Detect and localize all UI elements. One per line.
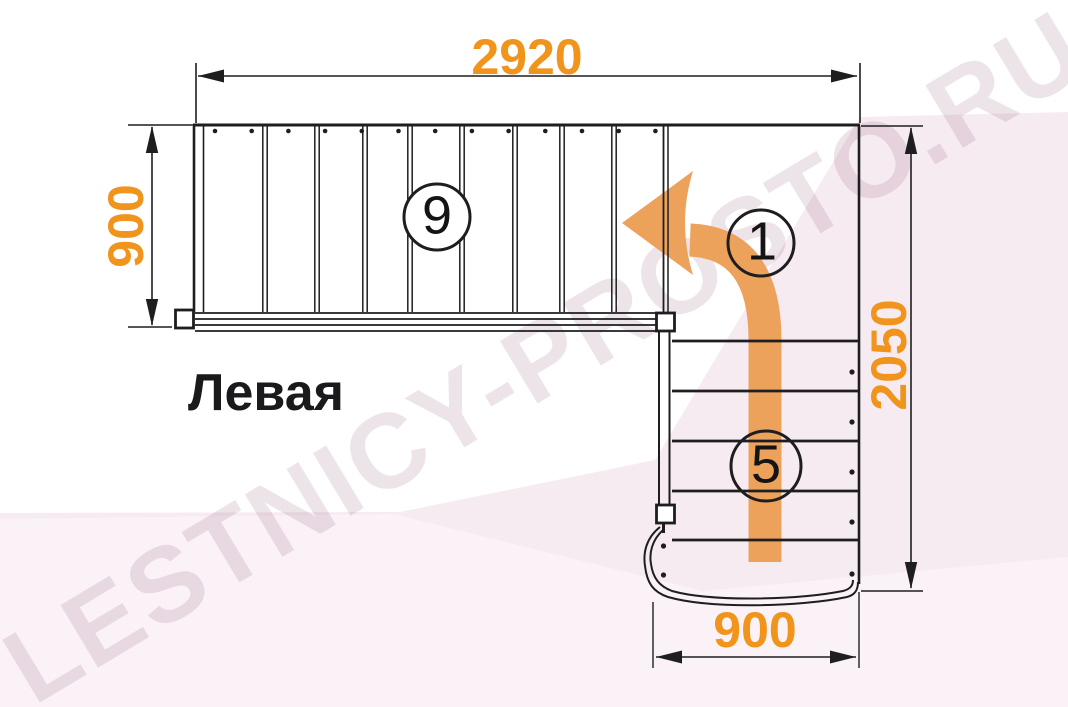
screw-dot — [849, 369, 854, 374]
upper-flight-stringer — [195, 313, 656, 331]
screw-dot — [213, 129, 218, 134]
newel-post-bottom — [657, 505, 675, 523]
screw-dot — [506, 129, 511, 134]
screw-dot — [543, 129, 548, 134]
staircase-plan-page: LESTNICY-PROSTO.RU — [0, 0, 1068, 707]
screw-dot — [661, 572, 666, 577]
direction-arrow-band — [690, 240, 765, 562]
dimension-left-depth-label: 900 — [97, 184, 155, 267]
newel-post-left — [176, 310, 194, 328]
screw-dot — [433, 129, 438, 134]
screw-dot — [580, 129, 585, 134]
screw-dot — [849, 519, 854, 524]
upper-steps-count: 9 — [422, 185, 452, 247]
screw-dot — [849, 571, 854, 576]
direction-arrow-head — [622, 171, 693, 275]
upper-flight-screw-dots — [213, 129, 658, 134]
screw-dot — [396, 129, 401, 134]
dimension-right-height-label: 2050 — [860, 299, 918, 410]
lower-flight-stringer — [659, 331, 670, 533]
plan-title: Левая — [188, 363, 344, 423]
screw-dot — [286, 129, 291, 134]
dimension-top-width-label: 2920 — [471, 28, 582, 86]
screw-dot — [849, 419, 854, 424]
newel-post-corner — [657, 313, 675, 331]
screw-dot — [249, 129, 254, 134]
screw-dot — [470, 129, 475, 134]
dimension-bottom-width-label: 900 — [713, 601, 796, 659]
screw-dot — [661, 543, 666, 548]
screw-dot — [653, 129, 658, 134]
screw-dot — [849, 469, 854, 474]
direction-arrow — [622, 171, 765, 562]
lower-steps-count: 5 — [751, 434, 781, 496]
screw-dot — [360, 129, 365, 134]
direction-number: 1 — [747, 211, 777, 273]
screw-dot — [616, 129, 621, 134]
screw-dot — [323, 129, 328, 134]
